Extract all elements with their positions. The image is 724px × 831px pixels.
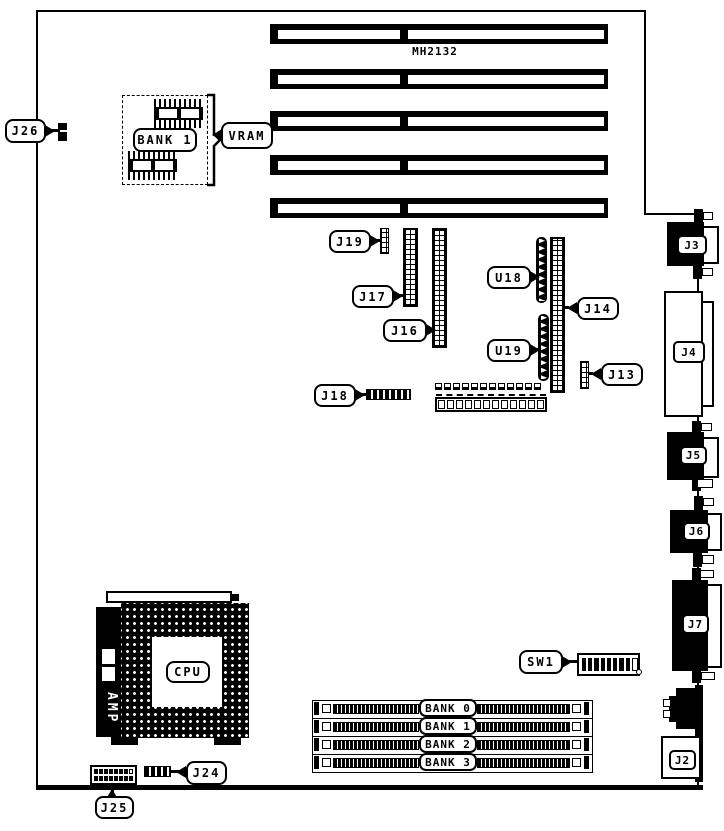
power-socket xyxy=(447,400,454,409)
j24-pointer-icon xyxy=(176,766,186,778)
u19-pointer-icon xyxy=(530,344,540,356)
j17-pointer-icon xyxy=(393,290,403,302)
simm-contact-strip xyxy=(333,704,419,714)
board-edge-bottom xyxy=(36,785,703,790)
slot-key-right xyxy=(408,204,604,213)
vram-dip-socket-top xyxy=(154,99,203,128)
power-socket xyxy=(510,400,517,409)
expansion-slot-5 xyxy=(270,198,608,218)
slot-key-right xyxy=(408,117,604,126)
j25-pin xyxy=(129,776,133,781)
simm-endcap xyxy=(314,720,319,733)
simm-endcap xyxy=(314,738,319,751)
dip-cavity xyxy=(128,159,177,172)
dip-switch-segment xyxy=(601,658,605,671)
j13-label: J13 xyxy=(601,363,643,386)
retention-bar-window xyxy=(102,667,115,681)
bank0-label: BANK 0 xyxy=(419,699,477,717)
sw1-pointer-icon xyxy=(562,656,572,668)
dip-switch-segment xyxy=(619,658,623,671)
power-pin xyxy=(453,383,460,390)
j6-screw-tab xyxy=(703,498,714,506)
j19-label: J19 xyxy=(329,230,371,253)
slot-key-right xyxy=(408,161,604,170)
j19-pointer-icon xyxy=(370,235,380,247)
j25-pin xyxy=(119,776,123,781)
power-pin xyxy=(480,383,487,390)
power-socket xyxy=(465,400,472,409)
j4-label: J4 xyxy=(673,341,705,363)
dip-pin-row xyxy=(128,172,177,180)
simm-clip xyxy=(322,740,331,749)
sw1-label: SW1 xyxy=(519,650,563,674)
j24-connector xyxy=(144,766,171,777)
j25-pin-row xyxy=(94,776,133,781)
j6-mount-tab xyxy=(694,496,703,510)
j6-screw-tab xyxy=(702,555,714,564)
dip-pin-row xyxy=(128,151,177,159)
j3-screw-tab xyxy=(702,268,713,276)
j3-mount-tab xyxy=(694,209,703,223)
j25-pin xyxy=(124,776,128,781)
dip-cavity-slot xyxy=(133,161,151,170)
expansion-slot-1 xyxy=(270,24,608,44)
j25-pin xyxy=(94,776,98,781)
j14-pointer-icon xyxy=(567,302,577,314)
power-socket xyxy=(519,400,526,409)
simm-clip xyxy=(322,758,331,767)
simm-contact-strip xyxy=(333,740,419,750)
board-edge-step xyxy=(644,213,699,215)
power-socket xyxy=(528,400,535,409)
amp-brand-text: AMP xyxy=(98,683,119,733)
dip-cavity xyxy=(154,107,203,120)
slot-key-left xyxy=(278,161,400,170)
simm-endcap xyxy=(584,756,589,769)
j17-pin-header xyxy=(403,228,418,307)
bank1-group-label: BANK 1 xyxy=(133,128,197,152)
j14-pin-header xyxy=(550,237,565,393)
slot-key-left xyxy=(278,75,400,84)
keyboard-din-tab xyxy=(663,699,671,707)
sw1-index-dot xyxy=(636,669,642,675)
dip-switch-segment xyxy=(594,658,598,671)
motherboard-diagram: MH2132 J26 BANK 1 VRAM J19 J17 J16 xyxy=(0,0,724,831)
cpu-socket-lever-latch xyxy=(230,594,239,601)
j7-mount-tab xyxy=(692,670,701,683)
j25-pin xyxy=(109,769,113,774)
j7-screw-tab xyxy=(701,672,715,680)
j3-mount-tab xyxy=(693,265,702,279)
j25-pin xyxy=(99,769,103,774)
power-connector-divider xyxy=(436,394,546,396)
power-socket xyxy=(492,400,499,409)
j26-label: J26 xyxy=(5,119,46,143)
j24-label: J24 xyxy=(186,761,227,785)
cpu-retention-bar: AMP xyxy=(96,607,121,737)
simm-contact-strip xyxy=(477,704,570,714)
j16-label: J16 xyxy=(383,319,427,342)
j25-pin xyxy=(124,769,128,774)
bank1-label: BANK 1 xyxy=(419,717,477,735)
keyboard-din-tab xyxy=(663,710,671,718)
power-pin xyxy=(534,383,541,390)
j16-pointer-icon xyxy=(426,324,436,336)
j14-label: J14 xyxy=(577,297,619,320)
j18-connector xyxy=(366,389,411,400)
slot-key-right xyxy=(408,75,604,84)
simm-endcap xyxy=(314,756,319,769)
j25-label: J25 xyxy=(95,796,134,819)
j7-screw-tab xyxy=(700,570,714,578)
j18-pointer-icon xyxy=(355,389,365,401)
j25-pin-1 xyxy=(129,769,133,774)
simm-endcap xyxy=(584,738,589,751)
dip-switch-segment xyxy=(626,658,630,671)
board-edge-right-upper xyxy=(644,10,646,215)
simm-socket-bank3: BANK 3 xyxy=(312,754,593,773)
power-connector-pins xyxy=(435,383,547,392)
simm-contact-strip xyxy=(333,758,419,768)
simm-clip xyxy=(572,704,581,713)
j3-screw-tab xyxy=(703,212,713,220)
power-socket xyxy=(456,400,463,409)
dip-switch-segment xyxy=(607,658,611,671)
simm-endcap xyxy=(314,702,319,715)
simm-clip xyxy=(322,722,331,731)
u18-label: U18 xyxy=(487,266,531,289)
dip-pin-row xyxy=(154,99,203,107)
j25-pin xyxy=(109,776,113,781)
slot-key-left xyxy=(278,30,400,39)
j25-pin xyxy=(104,769,108,774)
j6-label: J6 xyxy=(683,522,710,541)
j5-label: J5 xyxy=(680,446,707,465)
power-socket xyxy=(474,400,481,409)
expansion-slot-3 xyxy=(270,111,608,131)
dip-switch-segment xyxy=(588,658,592,671)
u19-label: U19 xyxy=(487,339,531,362)
power-pin xyxy=(462,383,469,390)
expansion-slot-4 xyxy=(270,155,608,175)
j25-pin xyxy=(114,769,118,774)
simm-contact-strip xyxy=(333,722,419,732)
simm-clip xyxy=(572,740,581,749)
simm-contact-strip xyxy=(477,758,570,768)
cpu-socket-foot xyxy=(111,737,138,745)
sw1-dip-switch xyxy=(577,653,640,676)
power-socket xyxy=(483,400,490,409)
j25-connector xyxy=(90,765,137,785)
j25-pin-row xyxy=(94,769,133,774)
j6-mount-tab xyxy=(693,553,702,567)
power-pin xyxy=(525,383,532,390)
power-pin xyxy=(444,383,451,390)
board-edge-top xyxy=(36,10,646,12)
board-model-text: MH2132 xyxy=(400,45,470,58)
j26-connector xyxy=(58,132,67,141)
power-pin xyxy=(498,383,505,390)
dip-cavity-slot xyxy=(155,161,173,170)
u18-pointer-icon xyxy=(530,271,540,283)
slot-key-left xyxy=(278,117,400,126)
simm-endcap xyxy=(584,702,589,715)
vram-label: VRAM xyxy=(221,122,273,149)
retention-bar-window xyxy=(102,649,115,664)
j5-screw-tab xyxy=(697,479,713,488)
simm-clip xyxy=(322,704,331,713)
slot-key-left xyxy=(278,204,400,213)
j17-label: J17 xyxy=(352,285,394,308)
power-pin xyxy=(471,383,478,390)
simm-contact-strip xyxy=(477,722,570,732)
j26-pointer-icon xyxy=(45,125,55,137)
bank3-label: BANK 3 xyxy=(419,753,477,771)
cpu-label: CPU xyxy=(166,661,210,683)
j25-pin xyxy=(94,769,98,774)
simm-clip xyxy=(572,722,581,731)
simm-clip xyxy=(572,758,581,767)
j25-pin xyxy=(114,776,118,781)
power-pin xyxy=(435,383,442,390)
j3-label: J3 xyxy=(677,235,707,255)
cpu-socket-foot xyxy=(214,737,241,745)
expansion-slot-2 xyxy=(270,69,608,89)
power-pin xyxy=(516,383,523,390)
j13-pointer-icon xyxy=(591,368,601,380)
power-pin xyxy=(489,383,496,390)
simm-contact-strip xyxy=(477,740,570,750)
j25-pin xyxy=(99,776,103,781)
power-pin xyxy=(507,383,514,390)
j5-screw-tab xyxy=(701,423,712,431)
power-socket xyxy=(501,400,508,409)
dip-cavity-slot xyxy=(181,109,199,118)
j25-pin xyxy=(104,776,108,781)
j7-label: J7 xyxy=(682,614,709,634)
j2-label: J2 xyxy=(669,750,696,770)
simm-endcap xyxy=(584,720,589,733)
dip-switch-segment xyxy=(582,658,586,671)
u18-sip-device xyxy=(536,237,547,303)
power-socket xyxy=(438,400,445,409)
j13-connector xyxy=(580,361,589,389)
slot-key-right xyxy=(408,30,604,39)
power-socket xyxy=(537,400,544,409)
j25-pin xyxy=(119,769,123,774)
dip-cavity-slot xyxy=(159,109,177,118)
cpu-socket-lever xyxy=(106,591,232,603)
dip-pin-row xyxy=(154,120,203,128)
power-connector-body xyxy=(435,397,547,412)
vram-dip-socket-bottom xyxy=(128,151,177,180)
keyboard-din-connector xyxy=(676,688,703,729)
j18-label: J18 xyxy=(314,384,356,407)
bank2-label: BANK 2 xyxy=(419,735,477,753)
dip-switch-segment xyxy=(613,658,617,671)
